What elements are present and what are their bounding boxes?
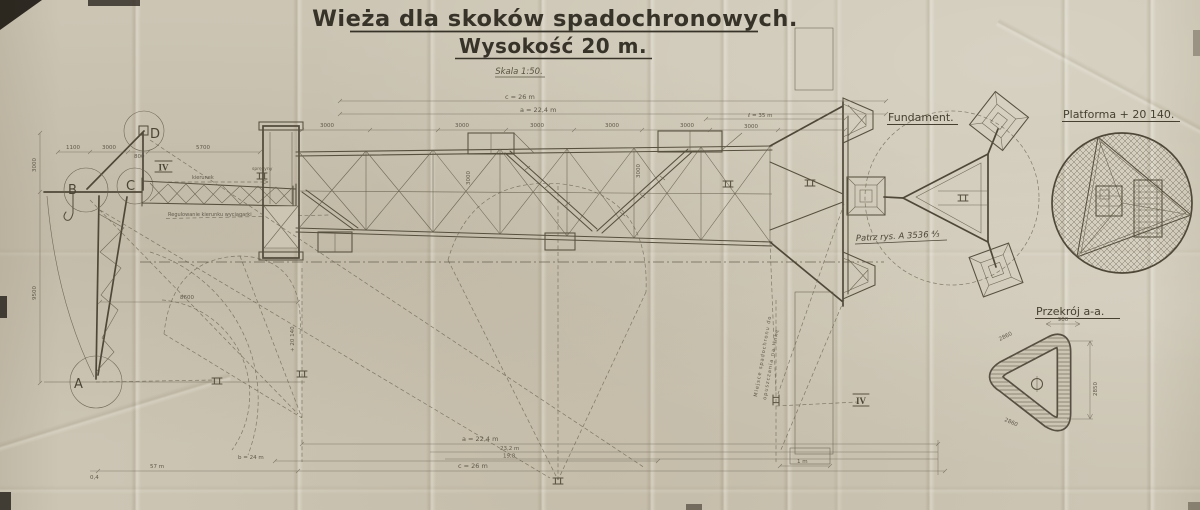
footing-left	[847, 177, 885, 215]
dim-04: 0,4	[90, 475, 99, 481]
section-ring	[996, 341, 1064, 424]
dim-a-top: a = 22,4 m	[520, 106, 556, 114]
dim-1m: 1 m	[797, 459, 808, 465]
title-block: Wieża dla skoków spadochronowych. Wysoko…	[312, 6, 798, 77]
jib-boom	[142, 178, 296, 208]
dim-bay-5: 3000	[680, 123, 694, 129]
przekroj-section: Przekrój a-a. 2850 900 2860 2860	[996, 305, 1120, 429]
guy-line-construction	[90, 140, 858, 480]
dim-2860-bottom: 2860	[1003, 417, 1019, 428]
tower-base	[770, 98, 875, 306]
dim-900: 900	[1058, 317, 1069, 323]
node-label-d: D	[150, 127, 160, 142]
dim-c-top: c = 26 m	[505, 93, 535, 101]
dim-bay-4: 3000	[605, 123, 619, 129]
dim-bay-3: 3000	[530, 123, 544, 129]
przekroj-label: Przekrój a-a.	[1036, 305, 1104, 318]
dim-head3: 800	[134, 154, 145, 160]
node-label-c: C	[126, 179, 135, 194]
dim-head2: 3000	[102, 145, 116, 151]
truss-stairs	[302, 149, 693, 233]
drawing-subtitle: Wysokość 20 m.	[459, 34, 647, 58]
dim-bay-2: 3000	[455, 123, 469, 129]
dim-8600: 8600	[180, 295, 194, 301]
scale-label: Skala 1:50.	[495, 67, 543, 77]
paper-blemishes	[0, 0, 1200, 510]
truss-bottom-chord	[296, 228, 772, 246]
dim-v-bot: 9500	[32, 286, 38, 300]
platforma-plan: Platforma + 20 140.	[1050, 108, 1195, 276]
dim-c-bot: c = 26 m	[458, 462, 488, 470]
roman-iv-left: IV	[155, 161, 172, 173]
svg-text:IV: IV	[158, 163, 169, 173]
ground-strips	[790, 28, 833, 464]
blueprint-paper: Wieża dla skoków spadochronowych. Wysoko…	[0, 0, 1200, 510]
node-label-a: A	[74, 377, 83, 392]
dim-198: 19,8	[503, 454, 516, 460]
fundament-label: Fundament.	[888, 111, 954, 124]
roman-iv-right: IV	[853, 394, 869, 406]
drawing-title: Wieża dla skoków spadochronowych.	[312, 6, 798, 32]
anchor-symbols	[212, 173, 815, 484]
dim-bay-6: 3000	[744, 124, 758, 130]
dim-v-top: 3000	[32, 158, 38, 172]
platform-elevation-note: + 20 140	[290, 326, 296, 352]
main-elevation: D B C A kierunek sprężyny Regulowanie ki…	[44, 28, 884, 484]
dim-head1: 1100	[66, 145, 80, 151]
backstay-cable	[47, 196, 94, 377]
footing-top	[970, 92, 1029, 151]
drawing-svg: Wieża dla skoków spadochronowych. Wysoko…	[0, 0, 1200, 510]
truss-body	[296, 146, 772, 246]
dim-a-bot: a = 22,4 m	[462, 435, 498, 443]
dim-length: ℓ = 35 m	[747, 113, 772, 119]
dim-2850: 2850	[1093, 382, 1099, 396]
foundation-triangle	[903, 154, 988, 242]
dim-bay-rot1: 3000	[466, 171, 472, 185]
dimensions: 1100 3000 800 5700 3000 9500 c = 26 m a …	[32, 93, 947, 481]
dim-b24: b = 24 m	[238, 455, 264, 461]
dim-bay-1: 3000	[320, 123, 334, 129]
svg-text:IV: IV	[856, 396, 867, 406]
platforma-label: Platforma + 20 140.	[1063, 108, 1174, 121]
fundament-plan: Fundament.	[847, 92, 1039, 297]
dim-57: 57 m	[150, 464, 164, 470]
tower-head-frame	[44, 111, 164, 408]
dim-bay-rot2: 3000	[636, 164, 642, 178]
dim-232: 23,2 m	[500, 446, 519, 452]
dim-2860-left: 2860	[998, 331, 1014, 343]
node-label-b: B	[68, 183, 77, 198]
dim-head4: 5700	[196, 145, 210, 151]
footing-bottom	[969, 243, 1023, 297]
